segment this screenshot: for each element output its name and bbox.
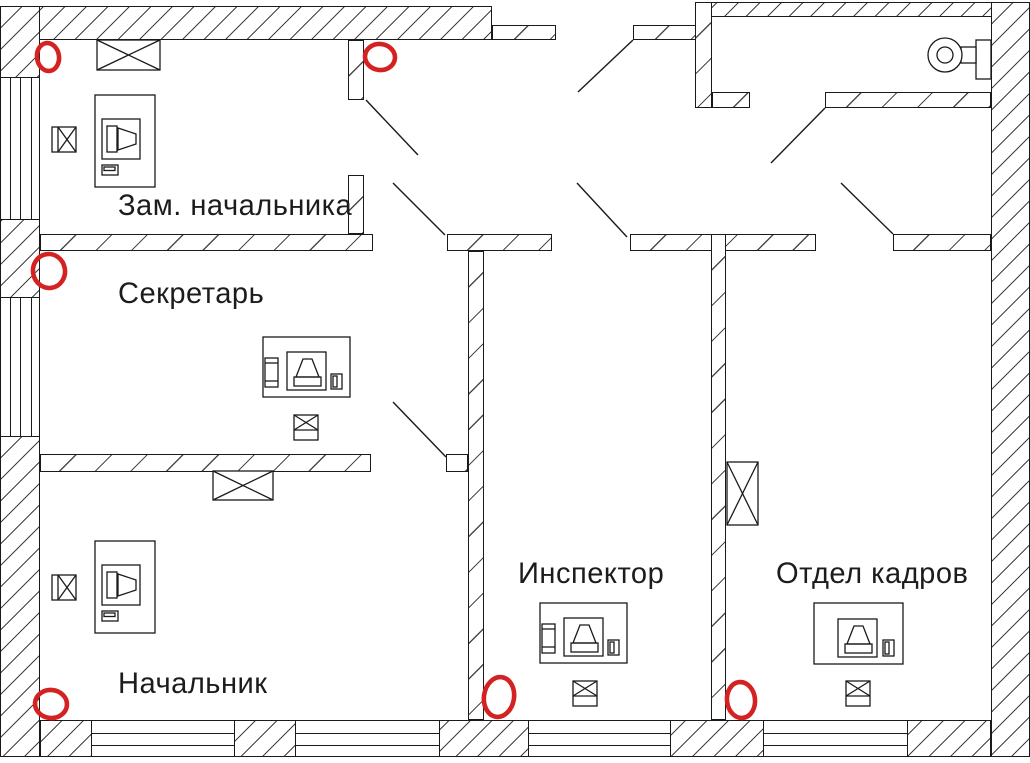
annotation-circle-1 xyxy=(35,42,61,73)
workstation-inspektor xyxy=(540,603,627,663)
door-hall xyxy=(771,108,825,163)
room-label-sekretar: Секретарь xyxy=(118,277,264,311)
floor-plan: Зам. начальника Секретарь Начальник Инсп… xyxy=(0,0,1030,763)
socket-sekretar xyxy=(294,415,318,440)
room-label-nachalnik: Начальник xyxy=(118,667,267,701)
cabinet-zam-top-wall xyxy=(97,40,160,70)
door-sekretar xyxy=(393,183,445,235)
workstation-sekretar xyxy=(263,337,350,397)
workstation-zam xyxy=(95,95,155,187)
annotation-circle-5 xyxy=(725,681,757,720)
annotation-circle-2 xyxy=(364,42,397,71)
fan-icon xyxy=(928,38,991,79)
cabinet-sekretar-wall xyxy=(213,471,273,500)
annotation-circle-4 xyxy=(481,675,517,719)
room-label-inspektor: Инспектор xyxy=(518,557,664,591)
socket-nachalnik xyxy=(52,575,76,600)
plan-linework xyxy=(0,0,1030,763)
cabinet-otdel-wall xyxy=(727,462,758,525)
annotation-circle-3 xyxy=(30,251,67,290)
workstation-otdel-kadrov xyxy=(814,603,903,664)
door-nachalnik xyxy=(393,402,446,457)
room-label-otdel-kadrov: Отдел кадров xyxy=(776,557,968,591)
socket-otdel-kadrov xyxy=(846,681,870,706)
door-inspektor xyxy=(577,183,627,237)
socket-zam xyxy=(52,127,76,152)
socket-inspektor xyxy=(573,681,597,706)
door-entrance xyxy=(578,40,633,92)
room-label-zam-nachalnika: Зам. начальника xyxy=(118,189,352,223)
door-zam-nachalnika xyxy=(366,100,418,155)
workstation-nachalnik xyxy=(95,541,155,633)
annotation-circle-6 xyxy=(34,688,69,719)
door-otdel-kadrov xyxy=(841,183,893,234)
